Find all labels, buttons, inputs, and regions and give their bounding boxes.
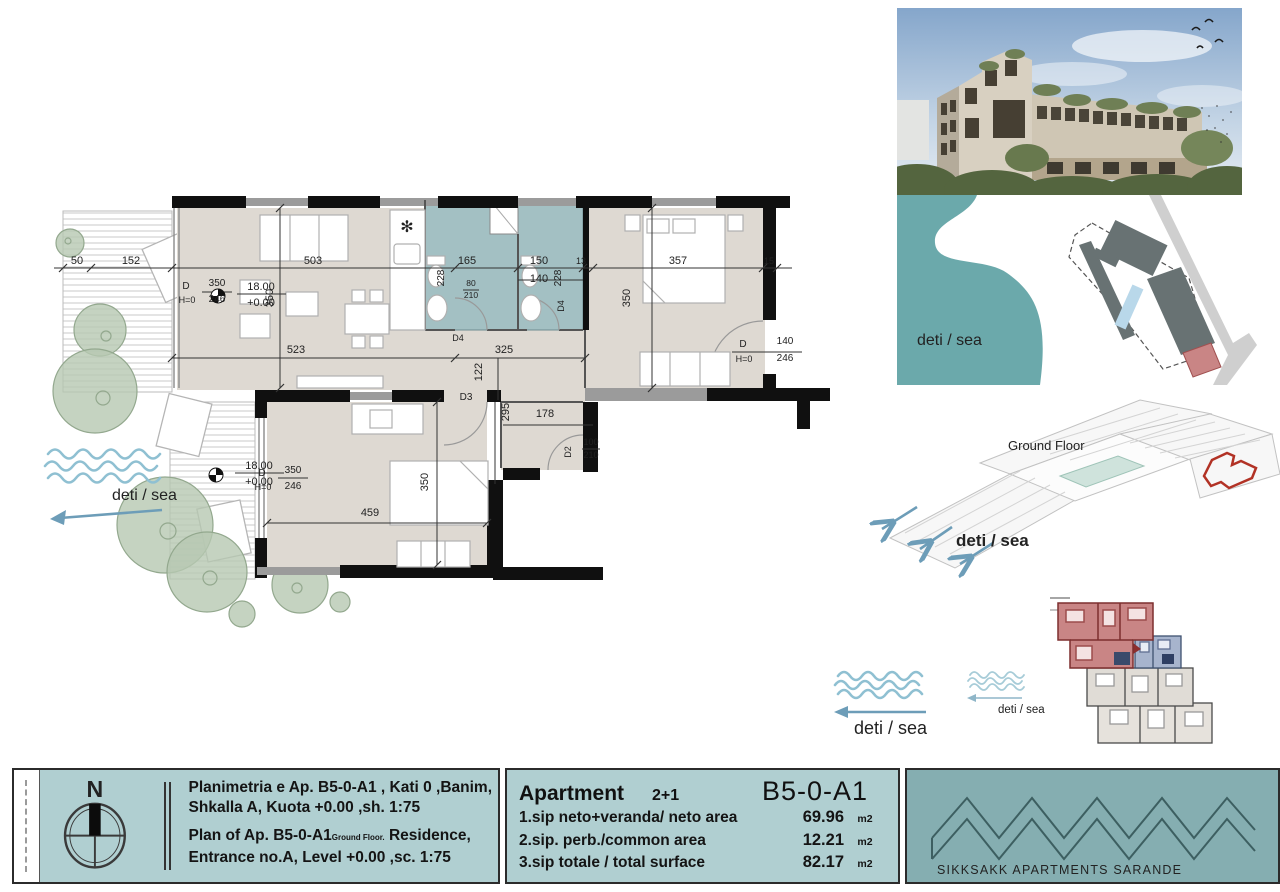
dim-label: 178 [536, 408, 554, 420]
dim-label: D3 [460, 392, 473, 403]
dim-label: H=0 [255, 482, 272, 492]
svg-text:N: N [87, 776, 104, 802]
dim-label: 15 [764, 256, 774, 266]
dim-label: 295 [500, 403, 512, 421]
dim-label: 246 [777, 353, 794, 364]
area-row-1: 1.sip neto+veranda/ neto area 69.96 m2 [519, 807, 886, 830]
drawing-sheet: ✻ [0, 0, 1280, 892]
apartment-label: Apartment [519, 782, 624, 806]
dim-label: 357 [669, 255, 687, 267]
titleblock-description: Planimetria e Ap. B5-0-A1 , Kati 0 ,Bani… [175, 770, 498, 882]
sea-label-wave-large: deti / sea [854, 718, 928, 738]
dim-label: 50 [71, 255, 83, 267]
title-line-sq-2: Shkalla A, Kuota +0.00 ,sh. 1:75 [189, 798, 492, 818]
dim-label: 210 [464, 290, 478, 300]
wave-symbol-large: deti / sea [828, 666, 943, 741]
dim-label: 140 [777, 336, 794, 347]
title-line-en-2: Entrance no.A, Level +0.00 ,sc. 1:75 [189, 848, 492, 868]
dim-label: 122 [473, 363, 485, 381]
titleblock-logo: SIKKSAKK APARTMENTS SARANDE [905, 768, 1280, 884]
dim-label: D [182, 281, 189, 292]
dim-label: 150 [530, 255, 548, 267]
title-line-sq-1: Planimetria e Ap. B5-0-A1 , Kati 0 ,Bani… [189, 778, 492, 798]
dim-label: 350 [285, 465, 302, 476]
dim-label: 350 [209, 278, 226, 289]
dim-label: 459 [361, 507, 379, 519]
dim-label: 165 [458, 255, 476, 267]
sea-label-plan: deti / sea [112, 487, 177, 504]
dim-label: 140 [530, 273, 548, 285]
dim-label: +0.00 [247, 297, 275, 309]
apartment-type: 2+1 [652, 787, 679, 805]
floor-plan: ✻ [40, 186, 850, 661]
dim-label: 246 [209, 294, 226, 305]
zigzag-logo-icon: SIKKSAKK APARTMENTS SARANDE [907, 770, 1277, 881]
axon-watermark: Ground Floor [1008, 438, 1085, 453]
dim-label: 246 [285, 481, 302, 492]
title-line-en-1: Plan of Ap. B5-0-A1Ground Floor. Residen… [189, 826, 492, 848]
sea-label-axon: deti / sea [956, 531, 1029, 550]
dim-label: D [739, 339, 746, 350]
unit-locator-plans [1040, 588, 1280, 768]
sea-label-wave-small: deti / sea [998, 704, 1045, 716]
dim-label: 210 [583, 450, 598, 460]
dim-label: 503 [304, 255, 322, 267]
dim-label: D4 [452, 333, 464, 343]
titleblock-apartment: Apartment 2+1 B5-0-A1 1.sip neto+veranda… [505, 768, 900, 884]
dim-label: 228 [553, 269, 564, 286]
north-compass-icon: N [40, 770, 156, 881]
titleblock-separator [164, 782, 171, 870]
dim-label: D [258, 468, 265, 479]
area-row-3: 3.sip totale / total surface 82.17 m2 [519, 852, 886, 875]
dim-label: 80 [466, 278, 476, 288]
dim-label: 350 [621, 289, 633, 307]
dim-label: 152 [122, 255, 140, 267]
titleblock-margin-strip [14, 770, 40, 882]
dim-label: 325 [495, 344, 513, 356]
dim-label: 523 [287, 344, 305, 356]
axonometric-view: Ground Floor deti / sea [860, 388, 1280, 583]
gray-plan-upper [1087, 668, 1193, 706]
svg-text:✻: ✻ [400, 219, 413, 236]
blue-plan [1135, 636, 1181, 668]
dim-label: D4 [556, 300, 566, 312]
dim-label: 350 [419, 473, 431, 491]
gray-plan-lower [1098, 703, 1212, 743]
site-map: deti / sea [897, 195, 1280, 385]
dim-label: 18.00 [247, 281, 275, 293]
dim-label: 100 [583, 437, 598, 447]
dim-label: H=0 [736, 354, 753, 364]
dim-label: 13 [576, 256, 586, 266]
sea-label-map: deti / sea [917, 332, 982, 349]
dim-label: H=0 [179, 295, 196, 305]
wave-symbol-small: deti / sea [962, 668, 1047, 723]
titleblock-left: N Planimetria e Ap. B5-0-A1 , Kati 0 ,Ba… [12, 768, 500, 884]
building-render [897, 8, 1242, 196]
dim-label: 228 [436, 269, 447, 286]
logo-text: SIKKSAKK APARTMENTS SARANDE [937, 863, 1182, 877]
dim-label: D2 [563, 446, 573, 458]
unit-code: B5-0-A1 [762, 776, 868, 807]
sea-waves-plan [45, 450, 160, 483]
area-row-2: 2.sip. perb./common area 12.21 m2 [519, 830, 886, 853]
